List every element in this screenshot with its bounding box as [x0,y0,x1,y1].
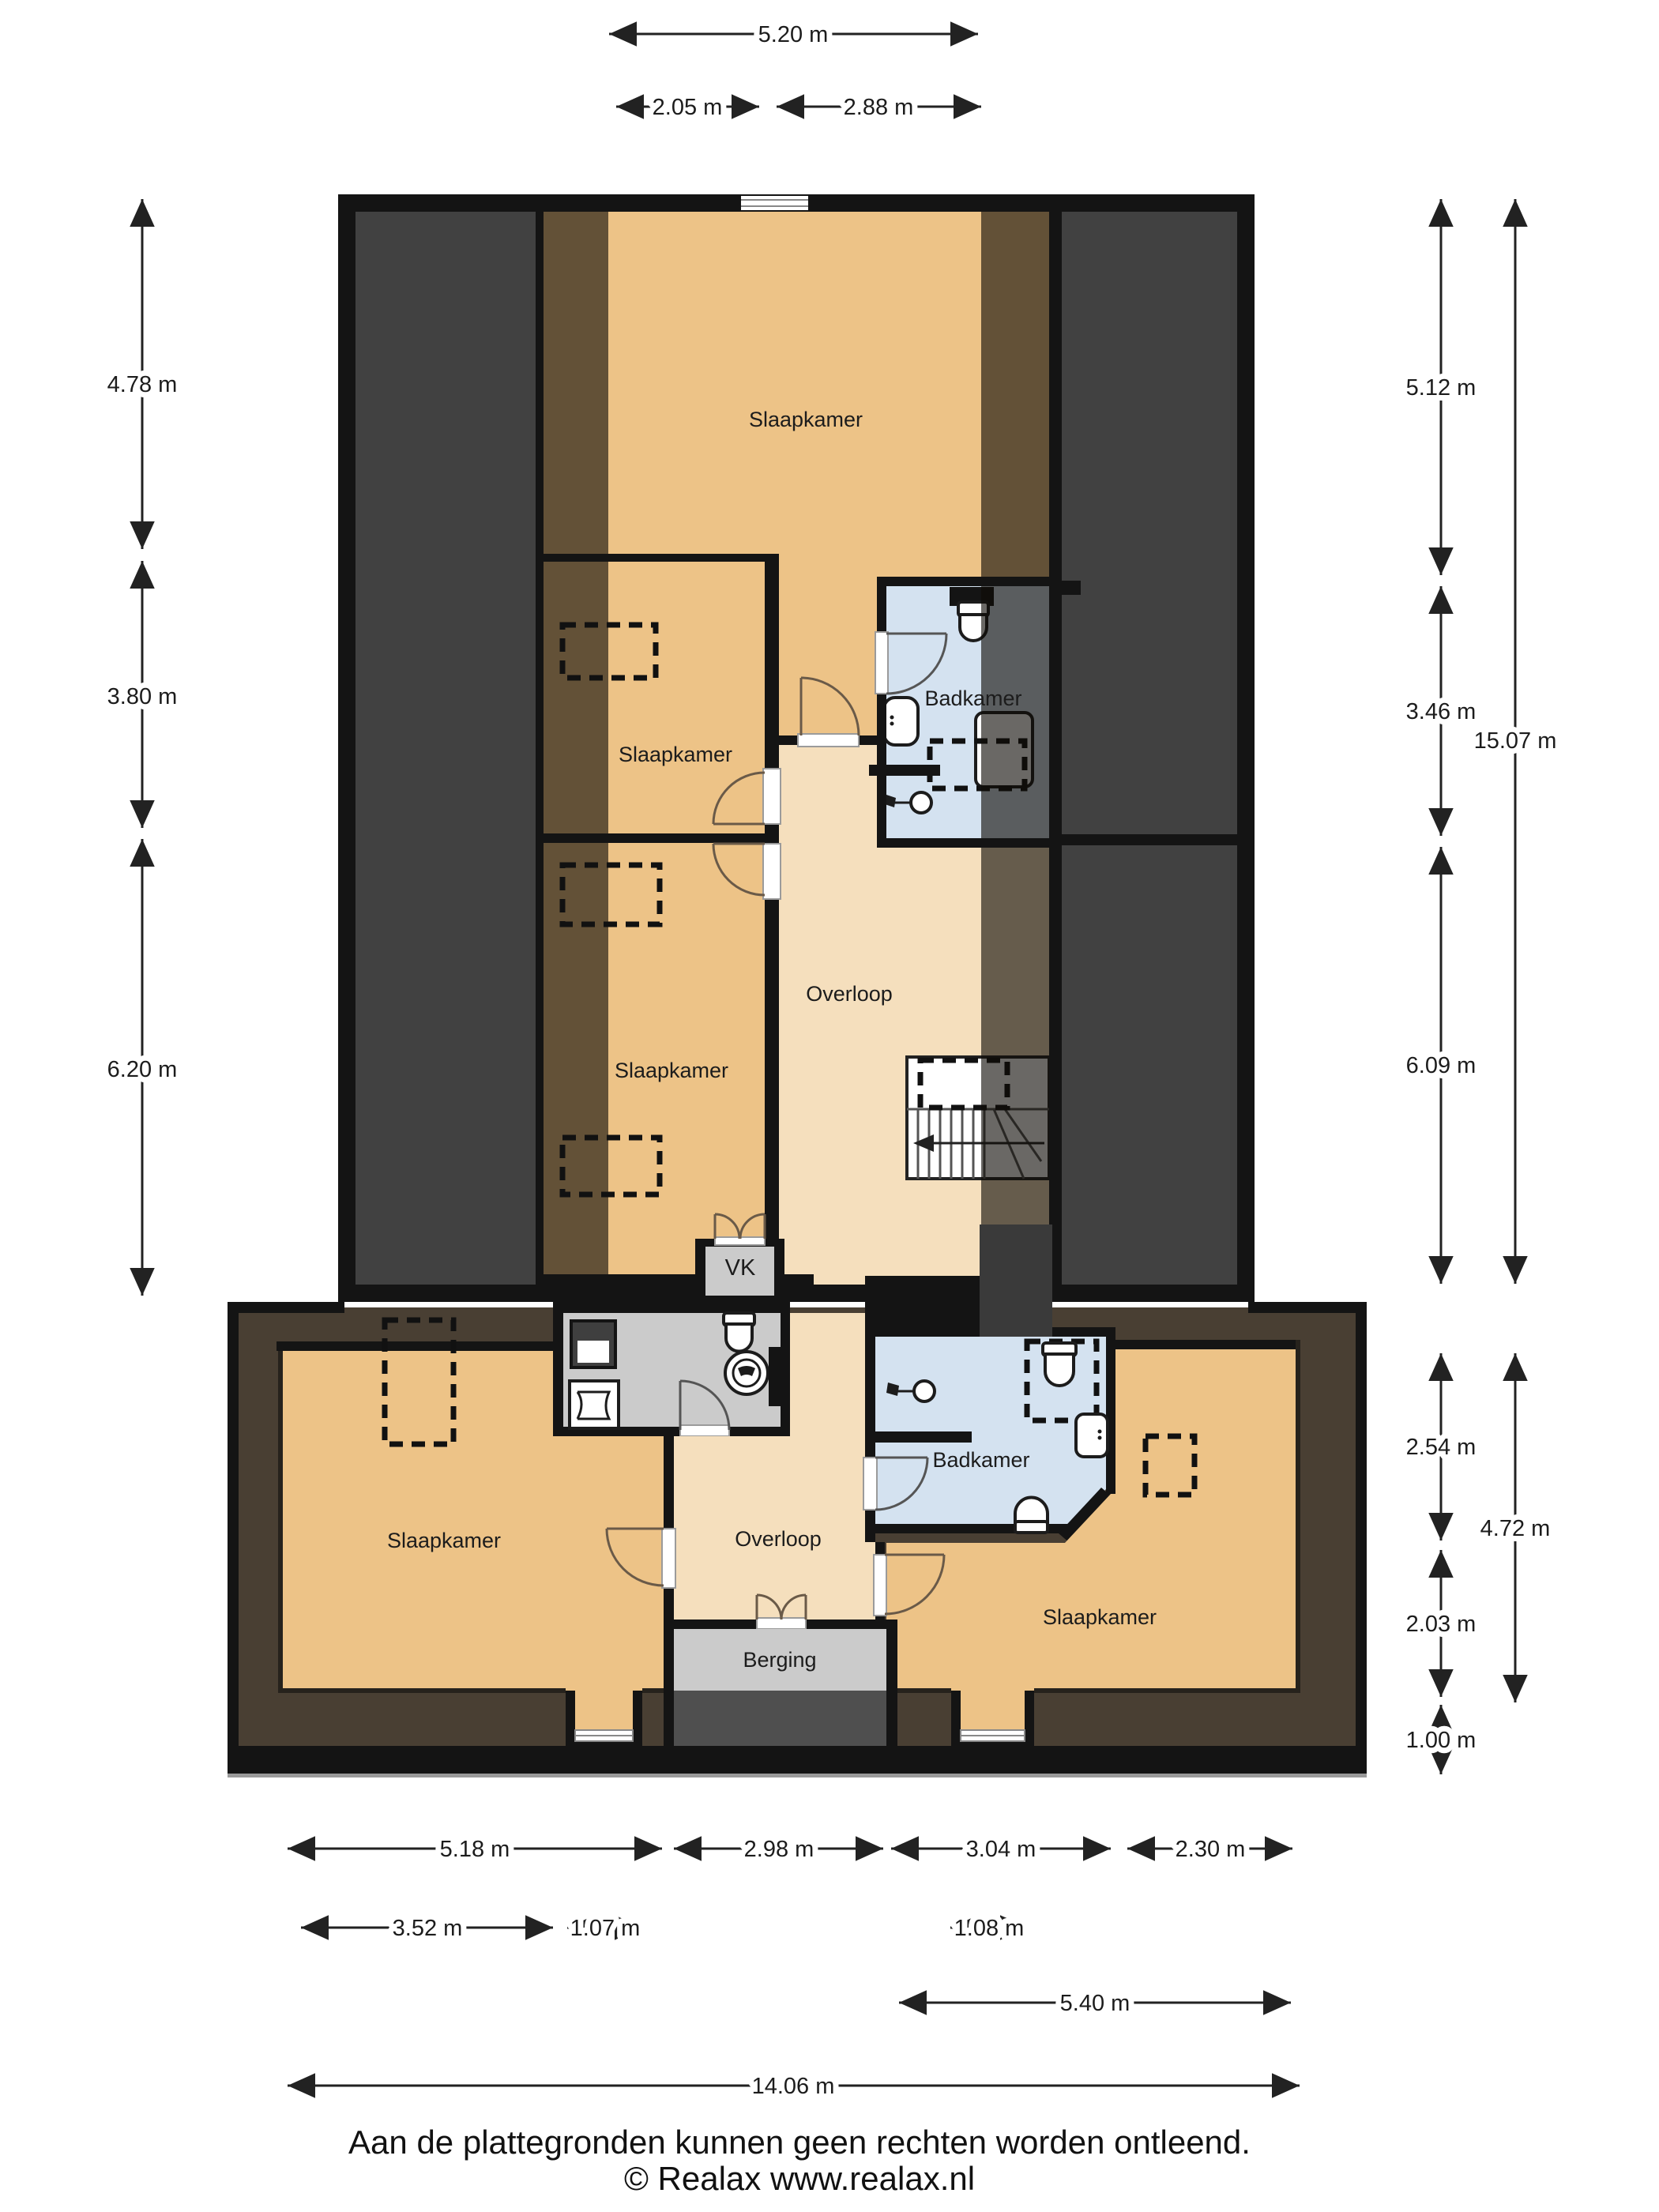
upper-hall-top [779,745,877,848]
dim-bottom-r1b: 2.98 m [744,1837,814,1862]
footer-copyright: © Realax www.realax.nl [624,2160,975,2197]
door-opening [680,1425,729,1436]
dim-bottom-r1c: 3.04 m [966,1837,1036,1862]
washbasin [884,698,918,745]
door-opening [874,1555,886,1616]
dim-bottom-r1d: 2.30 m [1176,1837,1246,1862]
room-label-slaapkamer-rechts: Slaapkamer [1043,1605,1157,1629]
door-opening [863,1458,877,1510]
lower-hall-neck [790,1313,865,1436]
dim-top-left: 2.05 m [653,95,723,120]
toilet [724,1313,754,1352]
door-opening [757,1618,806,1629]
room-label-badkamer-boven: Badkamer [924,687,1021,710]
room-label-overloop-boven: Overloop [806,982,893,1006]
room-label-slaapkamer-links: Slaapkamer [387,1529,501,1552]
dim-right-e: 2.03 m [1406,1612,1477,1637]
dim-bottom-r2b: 1.07 m [570,1916,641,1941]
footer-disclaimer: Aan de plattegronden kunnen geen rechten… [348,2124,1251,2161]
window-top [738,194,811,212]
door-opening [763,844,781,899]
dim-bottom-r3: 5.40 m [1060,1991,1130,2016]
wall-stub [875,1431,972,1443]
upper-floor-block [338,194,1255,1302]
door-opening [662,1529,675,1588]
door-opening [875,632,888,694]
dim-bottom-r4: 14.06 m [752,2074,835,2099]
roof-space-left [355,212,536,1285]
dim-right-b: 3.46 m [1406,699,1477,724]
roofslope-shade-right [981,212,1049,1274]
room-label-overloop-onder: Overloop [735,1527,822,1551]
room-label-vk: VK [725,1255,756,1281]
dim-left-a: 4.78 m [107,372,178,397]
lower-floor-block [228,1224,1367,1777]
room-label-slaapkamer-top: Slaapkamer [749,408,863,431]
dim-left-c: 6.20 m [107,1057,178,1082]
dim-right-d: 2.54 m [1406,1435,1477,1460]
washbasin [1076,1414,1108,1457]
dim-right-total-lower: 4.72 m [1480,1516,1551,1541]
room-label-slaapkamer-onder: Slaapkamer [615,1059,728,1082]
window-bay-left [566,1691,642,1747]
utility-room [553,1302,802,1436]
door-opening [763,769,781,824]
dim-bottom-r2a: 3.52 m [393,1916,463,1941]
dim-top-right: 2.88 m [844,95,914,120]
dim-bottom-r2c: 1.08 m [954,1916,1025,1941]
dim-bottom-r1a: 5.18 m [440,1837,510,1862]
dim-top-total: 5.20 m [758,22,829,47]
room-label-slaapkamer-mid: Slaapkamer [619,743,732,766]
roofslope-shade-left [544,212,608,1274]
door-opening [798,734,859,747]
dim-right-a: 5.12 m [1406,375,1477,401]
toilet [1015,1498,1048,1533]
dim-right-total-upper: 15.07 m [1474,728,1557,754]
roof-space-right [1052,212,1237,1285]
dim-right-f: 1.00 m [1406,1728,1477,1753]
storage-room [674,1629,886,1746]
toilet [1043,1343,1076,1386]
dim-left-b: 3.80 m [107,684,178,709]
window-bay-right [951,1691,1034,1747]
room-label-berging: Berging [743,1648,816,1672]
dim-right-c: 6.09 m [1406,1053,1477,1078]
laundry-tub [570,1381,619,1428]
washing-machine-icon [725,1352,768,1394]
room-label-badkamer-onder: Badkamer [932,1448,1029,1472]
dryer [571,1321,615,1367]
floorplan-canvas: Slaapkamer Slaapkamer Slaapkamer Badkame… [0,0,1659,2212]
